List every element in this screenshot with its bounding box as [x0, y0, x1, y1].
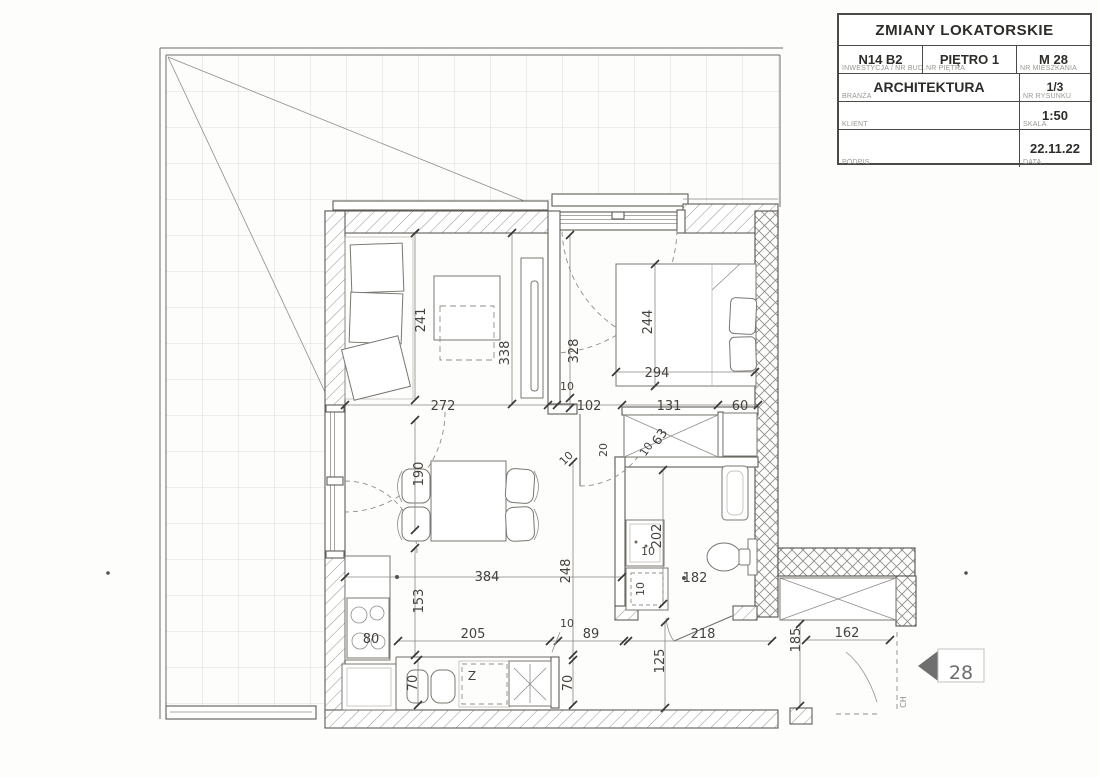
dishwasher-label: Z	[468, 669, 476, 683]
dishwasher	[459, 661, 510, 707]
fridge	[509, 661, 551, 706]
dim-entry-width: 162	[835, 626, 860, 641]
dim-basin-wall: 10	[641, 545, 655, 558]
dim-living-width: 272	[431, 399, 456, 414]
client-label: KLIENT	[842, 121, 868, 128]
dim-bedroom-partition: 328	[567, 339, 582, 364]
scanned-floor-plan-page: 241 272 338 328 10 244 294 102 131 60 63…	[0, 0, 1099, 777]
date-value: 22.11.22	[1030, 142, 1080, 155]
title-block-client: KLIENT	[839, 102, 1019, 129]
dim-hall-length: 248	[559, 559, 574, 584]
apartment-label: NR MIESZKANIA	[1020, 65, 1077, 72]
door-mark-label: CH	[899, 696, 908, 708]
hob	[347, 598, 389, 658]
branch-label: BRANŻA	[842, 93, 872, 100]
dim-living-partition: 338	[498, 341, 513, 366]
dim-corridor-length: 218	[691, 627, 716, 642]
title-block-scale: 1:50 SKALA	[1019, 102, 1090, 129]
investment-label: INWESTYCJA / NR BUD.	[842, 65, 925, 72]
entry-arrow-icon	[918, 651, 938, 681]
hob-label: 80	[363, 632, 380, 647]
bath-radiator	[722, 466, 748, 520]
dim-kitchen-run: 205	[461, 627, 486, 642]
scale-label: SKALA	[1023, 121, 1047, 128]
title-block-signature: PODPIS	[839, 130, 1019, 167]
dim-bed-length: 244	[641, 310, 656, 335]
sofa	[342, 237, 413, 400]
entry-wardrobe	[780, 578, 896, 620]
title-block: ZMIANY LOKATORSKIE N14 B2 INWESTYCJA / N…	[837, 13, 1092, 165]
drawing-no-label: NR RYSUNKU	[1023, 93, 1071, 100]
toilet	[707, 539, 757, 575]
dining-table	[431, 461, 506, 541]
dim-kitchen-zone: 153	[412, 589, 427, 614]
branch-value: ARCHITEKTURA	[873, 81, 984, 94]
dim-bedroom-door: 102	[577, 399, 602, 414]
apartment-marker: 28	[918, 649, 984, 684]
title-block-drawing-no: 1/3 NR RYSUNKU	[1019, 74, 1090, 101]
dim-kitchen-end: 89	[583, 627, 600, 642]
tv-unit	[521, 258, 543, 398]
dim-wm-wall: 10	[634, 582, 647, 596]
entry-door	[846, 652, 877, 702]
apartment-number: 28	[949, 662, 973, 684]
dim-hall-notch: 20	[597, 443, 610, 457]
washing-machine	[626, 568, 668, 610]
title-block-investment: N14 B2 INWESTYCJA / NR BUD.	[839, 46, 922, 73]
dim-counter-depth-bottom: 70	[561, 675, 576, 692]
dim-dining-zone: 190	[412, 462, 427, 487]
shaft	[723, 413, 757, 456]
floor-label: NR PIĘTRA	[926, 65, 965, 72]
dim-shaft-width: 60	[732, 399, 749, 414]
dim-kitchen-wall: 10	[560, 617, 574, 630]
title-block-title: ZMIANY LOKATORSKIE	[839, 15, 1090, 45]
bed	[616, 264, 757, 386]
dim-hall-width: 384	[475, 570, 500, 585]
title-block-floor: PIĘTRO 1 NR PIĘTRA	[922, 46, 1016, 73]
dim-bed-width: 294	[645, 366, 670, 381]
title-block-apartment: M 28 NR MIESZKANIA	[1016, 46, 1090, 73]
dim-bath-width: 182	[683, 571, 708, 586]
date-label: DATA	[1023, 159, 1041, 166]
dim-corridor-width: 125	[653, 649, 668, 674]
coffee-table	[434, 276, 500, 360]
dim-wall-thickness: 10	[560, 380, 574, 393]
title-block-branch: ARCHITEKTURA BRANŻA	[839, 74, 1019, 101]
dim-wardrobe-width: 131	[657, 399, 682, 414]
dim-counter-depth-left: 70	[406, 675, 421, 692]
kitchen-cabinet	[342, 664, 396, 710]
signature-label: PODPIS	[842, 159, 870, 166]
dim-living-depth: 241	[414, 308, 429, 333]
dim-entry-length: 185	[789, 628, 804, 653]
title-block-date: 22.11.22 DATA	[1019, 130, 1090, 167]
